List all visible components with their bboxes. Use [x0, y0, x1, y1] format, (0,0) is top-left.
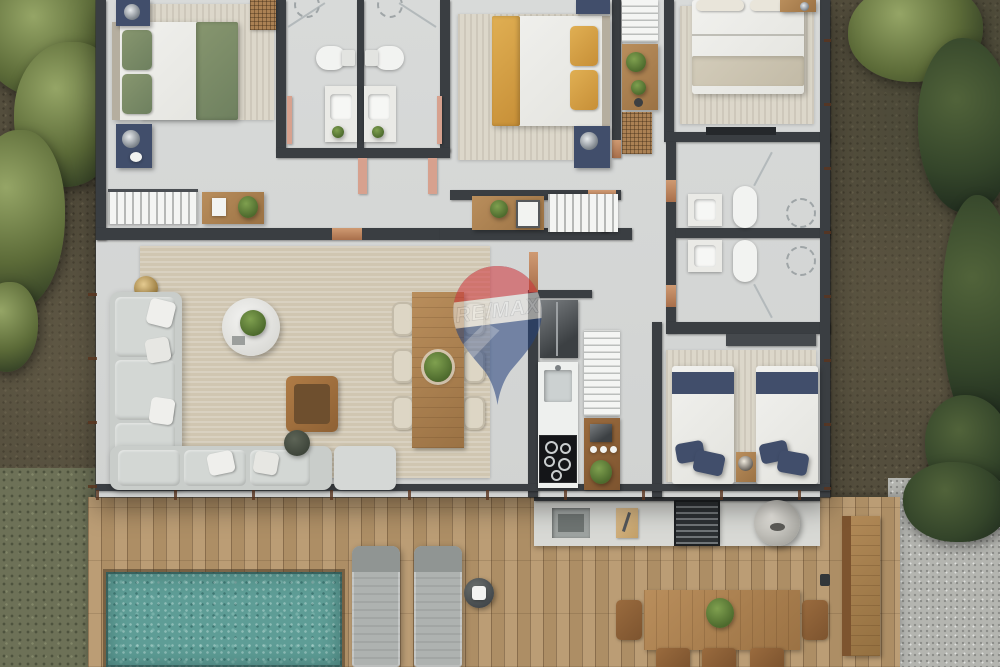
console-plant	[626, 52, 646, 72]
bed-blanket-band	[672, 372, 734, 394]
wall	[664, 0, 674, 142]
kitchen-faucet	[555, 365, 561, 371]
toilet-tank	[342, 50, 355, 66]
remax-watermark-balloon: RE/MAX	[447, 264, 548, 411]
door-leaf	[287, 96, 292, 144]
pillow	[696, 0, 744, 11]
bed-throw-blanket	[196, 22, 238, 120]
copper-sliding-doors	[96, 490, 830, 500]
deck-light	[820, 574, 830, 586]
outdoor-dining-chair	[656, 648, 690, 667]
bench-backrest	[842, 516, 851, 656]
outdoor-dining-chair	[750, 648, 784, 667]
toilet	[733, 186, 757, 228]
bed-headboard	[112, 22, 120, 120]
door-frame	[332, 228, 362, 240]
kitchen-sink	[544, 370, 572, 402]
wall	[666, 322, 830, 334]
wall	[276, 148, 450, 158]
lounger-headrest	[352, 546, 400, 572]
clothes-rack	[108, 190, 198, 224]
copper-window-frame	[824, 0, 831, 490]
toilet-tank	[365, 50, 378, 66]
toilet	[733, 240, 757, 282]
wall-shelf	[622, 0, 658, 42]
bed-throw-blanket	[492, 16, 520, 126]
vanity-plant	[372, 126, 384, 138]
dresser	[780, 0, 816, 12]
coffee-machine	[590, 424, 612, 442]
coffee-cups	[590, 446, 597, 453]
shower-head-mark	[786, 246, 816, 276]
grill	[676, 502, 718, 544]
pillow	[122, 74, 152, 114]
coffee-table-plant	[240, 310, 266, 336]
pillow	[570, 70, 598, 110]
storage-baskets	[622, 112, 652, 154]
wall	[96, 0, 106, 240]
vanity-plant	[332, 126, 344, 138]
sofa-ottoman	[334, 446, 396, 490]
side-table	[284, 430, 310, 456]
copper-glass-wall	[88, 232, 97, 488]
vanity-basin	[694, 245, 716, 267]
wall	[652, 322, 662, 497]
wall	[276, 0, 286, 152]
table-lamp	[580, 132, 598, 150]
bed-blanket-band	[756, 372, 818, 394]
door-leaf	[437, 96, 442, 144]
console-plant	[631, 80, 646, 95]
coffee-cups	[610, 446, 617, 453]
vanity-basin	[330, 94, 352, 120]
outdoor-dining-chair	[802, 600, 828, 640]
tv-console	[706, 127, 776, 135]
desk-paper	[212, 198, 226, 216]
vanity-basin	[368, 94, 390, 120]
armchair-seat	[294, 384, 330, 424]
burner	[558, 458, 571, 471]
console-vase	[634, 98, 643, 107]
wall	[357, 0, 364, 150]
outdoor-sink-basin	[558, 514, 584, 532]
throw-pillow	[252, 450, 279, 476]
lawn-patch	[0, 468, 102, 667]
door-leaf	[428, 158, 437, 194]
bed-throw-blanket	[692, 56, 804, 86]
outdoor-dining-chair	[702, 648, 736, 667]
swimming-pool	[106, 572, 342, 667]
door-frame	[612, 140, 621, 158]
wardrobe	[726, 334, 816, 346]
sofa-cushion	[118, 450, 180, 486]
decor-tray	[130, 152, 142, 162]
desk-plant	[238, 196, 258, 218]
floor-plan-render: RE/MAX	[0, 0, 1000, 667]
table-lamp	[122, 130, 140, 148]
burner	[551, 470, 562, 481]
nightstand-lamp	[738, 456, 753, 471]
dining-chair	[392, 396, 414, 430]
rack-rail	[108, 189, 198, 192]
fridge-handle	[556, 302, 558, 356]
dining-chair	[392, 349, 414, 383]
white-bench	[548, 194, 618, 232]
coffee-bar-plant	[590, 460, 612, 484]
table-plant	[706, 598, 734, 628]
pillow	[570, 26, 598, 66]
door-frame	[666, 285, 676, 307]
toilet	[374, 46, 404, 70]
dining-chair	[392, 302, 414, 336]
outdoor-dining-chair	[616, 600, 642, 640]
lounger-headrest	[414, 546, 462, 572]
pantry-shelves	[584, 330, 620, 416]
door-frame	[666, 180, 676, 202]
sideboard-plant	[490, 200, 508, 218]
bed-fold-line	[692, 34, 804, 36]
burner	[545, 441, 558, 454]
oven-mouth	[770, 523, 785, 531]
wall	[96, 228, 440, 240]
table-lamp	[800, 2, 809, 11]
coffee-table-book	[232, 336, 245, 345]
shrub	[903, 462, 1000, 542]
wicker-basket	[250, 0, 276, 30]
burner	[560, 443, 571, 454]
burner	[544, 456, 555, 467]
wall	[612, 0, 621, 158]
coffee-cups	[600, 446, 607, 453]
door-leaf	[358, 158, 367, 194]
shower-head-mark	[786, 198, 816, 228]
vanity-basin	[694, 199, 716, 221]
pillow	[122, 30, 152, 70]
table-lamp	[124, 4, 140, 20]
bed-headboard	[602, 16, 610, 126]
throw-pillow	[144, 336, 172, 364]
throw-pillow	[148, 396, 175, 425]
nightstand	[576, 0, 610, 14]
wall	[676, 228, 830, 238]
side-table-tray	[472, 586, 486, 600]
framed-picture	[516, 200, 540, 228]
